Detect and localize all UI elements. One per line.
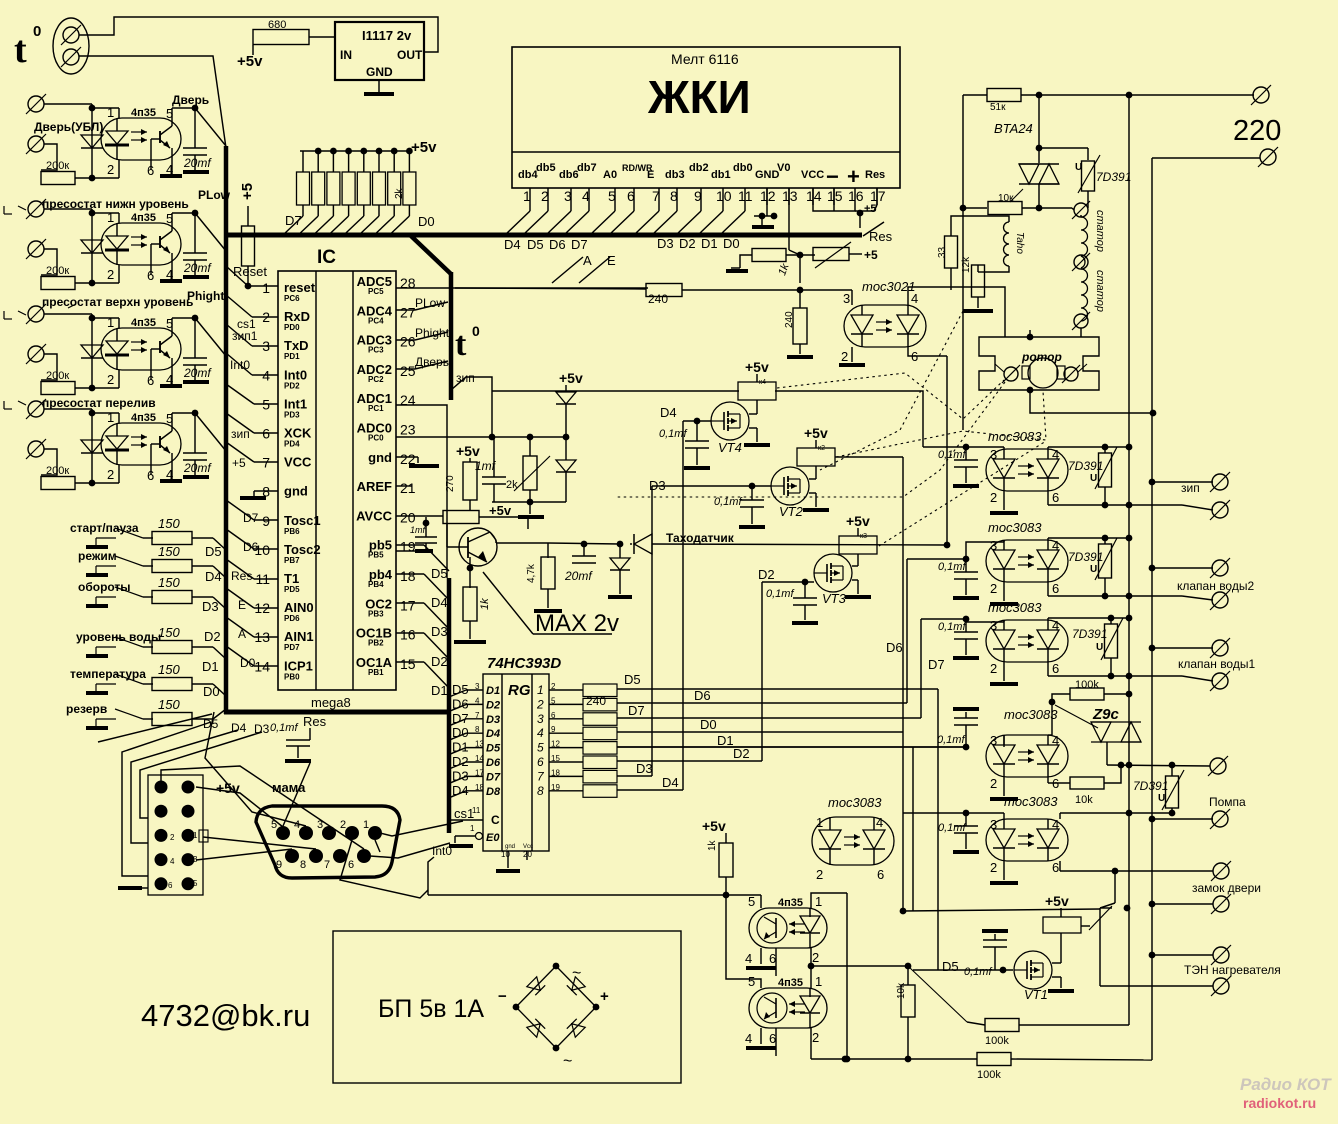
svg-text:0: 0 — [472, 323, 480, 339]
svg-text:13: 13 — [782, 188, 798, 204]
svg-text:2: 2 — [990, 860, 997, 875]
svg-text:200к: 200к — [46, 265, 69, 277]
svg-text:gnd: gnd — [284, 484, 308, 499]
svg-text:6: 6 — [1052, 661, 1059, 676]
svg-text:100k: 100k — [985, 1035, 1009, 1047]
svg-text:статор: статор — [1094, 270, 1106, 312]
svg-text:7D391: 7D391 — [1133, 779, 1168, 793]
svg-text:Радио КОТ: Радио КОТ — [1240, 1075, 1332, 1094]
svg-text:температура: температура — [70, 667, 146, 681]
svg-text:12k: 12k — [961, 256, 972, 273]
svg-text:db1: db1 — [711, 169, 731, 181]
svg-text:5: 5 — [748, 974, 755, 989]
svg-text:VT3: VT3 — [822, 591, 847, 606]
svg-text:2: 2 — [107, 467, 114, 482]
svg-text:E: E — [238, 598, 246, 612]
svg-text:150: 150 — [158, 697, 180, 712]
svg-text:Res: Res — [869, 229, 893, 244]
svg-text:7D391: 7D391 — [1072, 627, 1107, 641]
svg-text:74HC393D: 74HC393D — [487, 655, 561, 672]
svg-text:4: 4 — [745, 951, 752, 966]
svg-text:2: 2 — [536, 697, 544, 711]
svg-text:10k: 10k — [1075, 794, 1093, 806]
svg-text:+5v: +5v — [745, 359, 769, 375]
svg-text:moc3083: moc3083 — [988, 600, 1042, 615]
svg-text:+5v: +5v — [846, 513, 870, 529]
svg-text:1: 1 — [193, 831, 198, 840]
svg-text:220: 220 — [1233, 115, 1281, 147]
svg-text:24: 24 — [400, 392, 416, 408]
svg-text:режим: режим — [78, 549, 117, 563]
svg-text:D7: D7 — [486, 771, 501, 783]
svg-text:200к: 200к — [46, 160, 69, 172]
svg-text:27: 27 — [400, 304, 416, 320]
svg-text:D3: D3 — [636, 761, 653, 776]
svg-text:mega8: mega8 — [311, 695, 351, 710]
svg-text:BTA24: BTA24 — [994, 121, 1033, 136]
svg-text:VT1: VT1 — [1024, 987, 1048, 1002]
svg-text:+5v: +5v — [489, 503, 512, 518]
svg-text:D1: D1 — [202, 659, 219, 674]
svg-text:VT2: VT2 — [779, 504, 804, 519]
svg-text:PD7: PD7 — [284, 643, 300, 652]
svg-text:0: 0 — [33, 23, 41, 40]
svg-text:7D391: 7D391 — [1068, 459, 1103, 473]
svg-text:PC4: PC4 — [368, 316, 384, 325]
svg-text:+5: +5 — [239, 183, 256, 200]
svg-text:+5v: +5v — [411, 139, 437, 156]
svg-text:20mf: 20mf — [183, 261, 212, 275]
svg-text:1k: 1k — [707, 839, 718, 851]
svg-text:D7: D7 — [285, 213, 302, 228]
svg-text:6: 6 — [147, 468, 154, 483]
svg-text:240: 240 — [784, 311, 795, 328]
svg-text:6: 6 — [769, 951, 776, 966]
svg-text:U: U — [1075, 162, 1082, 173]
svg-text:зип: зип — [1181, 481, 1200, 495]
svg-text:PC1: PC1 — [368, 404, 384, 413]
svg-text:18: 18 — [400, 568, 416, 584]
svg-text:D0: D0 — [240, 656, 256, 670]
svg-text:D2: D2 — [204, 629, 221, 644]
svg-text:PC0: PC0 — [368, 434, 384, 443]
svg-text:Res: Res — [303, 714, 327, 729]
svg-text:10: 10 — [501, 850, 510, 859]
svg-text:6: 6 — [769, 1031, 776, 1046]
svg-text:GND: GND — [755, 169, 780, 181]
svg-text:200к: 200к — [46, 370, 69, 382]
svg-text:1: 1 — [107, 210, 114, 225]
svg-text:15: 15 — [400, 656, 416, 672]
svg-text:VCC: VCC — [801, 169, 824, 181]
svg-text:D4: D4 — [431, 595, 448, 610]
svg-text:D2: D2 — [679, 236, 696, 251]
svg-text:2k: 2k — [394, 187, 405, 199]
svg-text:D0: D0 — [700, 717, 717, 732]
svg-text:23: 23 — [400, 422, 416, 438]
svg-text:6: 6 — [1052, 581, 1059, 596]
svg-text:A: A — [238, 627, 246, 641]
svg-text:Res: Res — [231, 569, 252, 583]
svg-text:20mf: 20mf — [183, 156, 212, 170]
svg-text:+5: +5 — [864, 248, 878, 262]
svg-text:RG: RG — [508, 682, 531, 699]
svg-text:PC2: PC2 — [368, 375, 384, 384]
svg-text:PLow: PLow — [198, 188, 231, 202]
svg-text:150: 150 — [158, 516, 180, 531]
svg-text:moc3083: moc3083 — [988, 429, 1042, 444]
svg-text:−: − — [498, 988, 507, 1005]
svg-text:20mf: 20mf — [564, 569, 593, 583]
svg-text:reset: reset — [284, 280, 316, 295]
svg-text:Дверь(УБЛ): Дверь(УБЛ) — [34, 120, 103, 134]
svg-text:D7: D7 — [243, 511, 259, 525]
svg-text:ТЭН нагревателя: ТЭН нагревателя — [1184, 963, 1281, 977]
svg-text:240: 240 — [648, 292, 668, 306]
svg-text:2: 2 — [340, 819, 346, 831]
svg-text:4п35: 4п35 — [131, 107, 156, 119]
svg-text:2: 2 — [841, 349, 848, 364]
svg-text:D5: D5 — [624, 672, 641, 687]
svg-text:D6: D6 — [886, 640, 903, 655]
svg-text:2: 2 — [990, 581, 997, 596]
svg-text:17: 17 — [870, 188, 886, 204]
svg-text:4п35: 4п35 — [131, 212, 156, 224]
svg-text:GND: GND — [366, 65, 393, 79]
svg-text:4п35: 4п35 — [131, 317, 156, 329]
svg-text:0,1mf: 0,1mf — [270, 722, 298, 734]
svg-text:51к: 51к — [990, 102, 1006, 113]
svg-text:t: t — [14, 29, 27, 71]
svg-text:2: 2 — [990, 661, 997, 676]
svg-text:PB0: PB0 — [284, 672, 300, 681]
svg-text:240: 240 — [586, 694, 606, 708]
svg-text:0,1mf: 0,1mf — [964, 966, 992, 978]
svg-text:U: U — [1090, 473, 1097, 484]
svg-text:26: 26 — [400, 334, 416, 350]
svg-text:PC3: PC3 — [368, 346, 384, 355]
svg-text:AIN0: AIN0 — [284, 600, 314, 615]
svg-text:moc3083: moc3083 — [828, 795, 882, 810]
svg-text:Tosc1: Tosc1 — [284, 513, 321, 528]
svg-text:D7: D7 — [571, 237, 588, 252]
svg-text:12: 12 — [760, 188, 776, 204]
svg-text:обороты: обороты — [78, 580, 131, 594]
svg-text:4: 4 — [876, 815, 883, 830]
svg-text:+5: +5 — [864, 203, 877, 215]
svg-text:D0: D0 — [723, 236, 740, 251]
svg-text:150: 150 — [158, 575, 180, 590]
svg-text:1mf: 1mf — [410, 525, 427, 535]
svg-text:U: U — [1158, 793, 1165, 804]
svg-text:резерв: резерв — [66, 702, 107, 716]
svg-text:зип: зип — [456, 371, 475, 385]
svg-text:4: 4 — [745, 1031, 752, 1046]
svg-text:17: 17 — [400, 597, 416, 613]
svg-text:A: A — [583, 253, 592, 268]
svg-text:20mf: 20mf — [183, 461, 212, 475]
svg-text:1: 1 — [363, 819, 369, 831]
svg-text:IN: IN — [340, 48, 352, 62]
svg-text:+5v: +5v — [237, 53, 263, 70]
svg-text:A0: A0 — [603, 169, 617, 181]
svg-text:1: 1 — [107, 315, 114, 330]
svg-text:Res: Res — [865, 169, 885, 181]
svg-text:8: 8 — [300, 859, 306, 871]
svg-text:db2: db2 — [689, 162, 709, 174]
svg-text:PLow: PLow — [415, 296, 445, 310]
svg-text:~: ~ — [563, 1053, 572, 1070]
svg-text:пресостат перелив: пресостат перелив — [42, 396, 156, 410]
svg-text:клапан воды2: клапан воды2 — [1177, 579, 1254, 593]
svg-text:+: + — [600, 988, 609, 1005]
svg-text:PC5: PC5 — [368, 287, 384, 296]
svg-text:PD3: PD3 — [284, 410, 300, 419]
svg-text:200к: 200к — [46, 465, 69, 477]
svg-text:20: 20 — [400, 509, 416, 525]
svg-text:1: 1 — [537, 683, 544, 697]
svg-text:D3: D3 — [657, 236, 674, 251]
svg-text:db7: db7 — [577, 162, 597, 174]
svg-text:14: 14 — [806, 188, 822, 204]
svg-text:D1: D1 — [486, 685, 500, 697]
svg-text:4п35: 4п35 — [778, 897, 803, 909]
svg-text:150: 150 — [158, 662, 180, 677]
svg-text:C: C — [491, 813, 500, 827]
svg-text:1: 1 — [470, 824, 475, 833]
svg-text:16: 16 — [400, 627, 416, 643]
svg-text:пресостат нижн уровень: пресостат нижн уровень — [42, 197, 189, 211]
svg-text:4: 4 — [294, 819, 300, 831]
svg-text:2: 2 — [990, 776, 997, 791]
svg-text:0,1mf: 0,1mf — [766, 588, 794, 600]
svg-text:150: 150 — [158, 625, 180, 640]
svg-text:PB2: PB2 — [368, 639, 384, 648]
svg-text:3: 3 — [537, 712, 544, 726]
svg-text:D4: D4 — [662, 775, 679, 790]
svg-text:2k: 2k — [506, 479, 518, 491]
svg-text:PD5: PD5 — [284, 585, 300, 594]
svg-text:2: 2 — [107, 372, 114, 387]
svg-text:680: 680 — [268, 19, 286, 31]
svg-text:33: 33 — [937, 246, 948, 258]
svg-text:10: 10 — [716, 188, 732, 204]
svg-text:пресостат верхн уровень: пресостат верхн уровень — [42, 295, 193, 309]
svg-text:U: U — [1090, 564, 1097, 575]
svg-text:4п35: 4п35 — [131, 412, 156, 424]
svg-text:11: 11 — [472, 806, 481, 815]
svg-text:16: 16 — [848, 188, 864, 204]
svg-text:+5v: +5v — [1045, 893, 1069, 909]
svg-text:клапан воды1: клапан воды1 — [1178, 657, 1255, 671]
svg-text:D4: D4 — [504, 237, 521, 252]
svg-text:V0: V0 — [777, 162, 790, 174]
svg-text:ICP1: ICP1 — [284, 658, 313, 673]
svg-text:db3: db3 — [665, 169, 685, 181]
svg-text:19: 19 — [400, 539, 416, 555]
svg-text:PB4: PB4 — [368, 580, 384, 589]
svg-text:7: 7 — [324, 859, 330, 871]
svg-text:0,1mf: 0,1mf — [714, 496, 742, 508]
svg-text:D3: D3 — [431, 624, 448, 639]
svg-text:radiokot.ru: radiokot.ru — [1243, 1095, 1316, 1111]
svg-text:2: 2 — [812, 1030, 819, 1045]
svg-text:D4: D4 — [231, 721, 247, 735]
svg-text:4п35: 4п35 — [778, 977, 803, 989]
svg-text:D2: D2 — [733, 746, 750, 761]
svg-text:Taho: Taho — [1014, 232, 1025, 254]
svg-text:7D391: 7D391 — [1068, 550, 1103, 564]
svg-text:PD0: PD0 — [284, 323, 300, 332]
svg-text:moc3083: moc3083 — [988, 520, 1042, 535]
svg-text:Phight: Phight — [415, 326, 450, 340]
svg-text:+5v: +5v — [702, 818, 726, 834]
svg-text:9: 9 — [262, 513, 270, 529]
svg-text:OUT: OUT — [397, 48, 423, 62]
svg-text:Z9c: Z9c — [1092, 706, 1120, 723]
svg-text:10k: 10k — [896, 982, 907, 999]
svg-text:2: 2 — [170, 833, 175, 842]
svg-text:D1: D1 — [701, 236, 718, 251]
svg-text:t: t — [455, 326, 467, 363]
svg-text:gnd: gnd — [368, 450, 392, 465]
svg-text:D1: D1 — [717, 733, 734, 748]
svg-text:4: 4 — [911, 291, 918, 306]
svg-text:Мелт 6116: Мелт 6116 — [671, 51, 739, 67]
svg-text:+5v: +5v — [456, 443, 480, 459]
svg-text:7D391: 7D391 — [1096, 170, 1131, 184]
svg-text:1: 1 — [107, 105, 114, 120]
svg-text:~: ~ — [572, 965, 581, 982]
svg-text:270: 270 — [445, 475, 456, 492]
svg-text:I1117 2v: I1117 2v — [362, 28, 412, 43]
svg-text:1: 1 — [107, 410, 114, 425]
svg-text:5: 5 — [748, 894, 755, 909]
svg-text:D2: D2 — [758, 567, 775, 582]
svg-text:D6: D6 — [243, 540, 259, 554]
svg-text:Int1: Int1 — [284, 396, 307, 411]
svg-text:PB7: PB7 — [284, 556, 300, 565]
svg-text:moc3083: moc3083 — [1004, 707, 1058, 722]
svg-text:6: 6 — [147, 373, 154, 388]
svg-text:Int0: Int0 — [284, 367, 307, 382]
svg-text:db5: db5 — [536, 162, 556, 174]
svg-text:6: 6 — [147, 163, 154, 178]
svg-text:4732@bk.ru: 4732@bk.ru — [141, 998, 310, 1033]
svg-text:5: 5 — [193, 879, 198, 888]
svg-text:Int0: Int0 — [230, 358, 250, 372]
svg-text:3: 3 — [843, 291, 850, 306]
svg-text:D5: D5 — [486, 743, 501, 755]
svg-text:−: − — [826, 164, 839, 189]
svg-text:RxD: RxD — [284, 309, 310, 324]
svg-text:2: 2 — [812, 950, 819, 965]
svg-text:db6: db6 — [559, 169, 579, 181]
svg-text:VT4: VT4 — [718, 440, 742, 455]
svg-text:6: 6 — [168, 881, 173, 890]
svg-text:D4: D4 — [205, 569, 222, 584]
svg-text:E: E — [647, 169, 654, 181]
svg-text:PD4: PD4 — [284, 440, 300, 449]
svg-text:PB3: PB3 — [368, 609, 384, 618]
svg-text:1: 1 — [815, 894, 822, 909]
svg-text:6: 6 — [1052, 490, 1059, 505]
svg-text:E0: E0 — [486, 832, 500, 844]
svg-text:4,7k: 4,7k — [526, 563, 537, 583]
svg-text:10к: 10к — [998, 193, 1014, 204]
svg-text:Int0: Int0 — [432, 844, 452, 858]
svg-text:D6: D6 — [486, 757, 501, 769]
svg-text:6: 6 — [537, 755, 544, 769]
svg-text:PB1: PB1 — [368, 668, 384, 677]
svg-text:БП 5в 1А: БП 5в 1А — [378, 995, 484, 1023]
svg-text:6: 6 — [877, 867, 884, 882]
svg-text:AVCC: AVCC — [356, 508, 392, 523]
svg-text:20mf: 20mf — [183, 366, 212, 380]
svg-text:1: 1 — [816, 815, 823, 830]
svg-text:PB6: PB6 — [284, 527, 300, 536]
svg-text:VCC: VCC — [284, 455, 312, 470]
svg-text:AIN1: AIN1 — [284, 629, 314, 644]
svg-text:Помпа: Помпа — [1209, 795, 1246, 809]
svg-text:4: 4 — [170, 857, 175, 866]
svg-text:PD1: PD1 — [284, 352, 300, 361]
svg-text:замок двери: замок двери — [1192, 881, 1261, 895]
svg-text:6: 6 — [1052, 860, 1059, 875]
svg-text:D3: D3 — [202, 599, 219, 614]
svg-text:D5: D5 — [527, 237, 544, 252]
svg-text:2: 2 — [107, 162, 114, 177]
svg-text:100k: 100k — [1075, 679, 1099, 691]
svg-text:статор: статор — [1094, 210, 1106, 252]
svg-text:Дверь: Дверь — [415, 355, 449, 369]
svg-text:+: + — [847, 164, 860, 189]
svg-text:4: 4 — [537, 726, 544, 740]
svg-text:moc3083: moc3083 — [1004, 794, 1058, 809]
svg-text:D8: D8 — [486, 786, 501, 798]
svg-text:150: 150 — [158, 544, 180, 559]
svg-text:21: 21 — [400, 480, 416, 496]
svg-text:1: 1 — [262, 280, 270, 296]
svg-text:Tosc2: Tosc2 — [284, 542, 321, 557]
svg-text:D1: D1 — [431, 683, 448, 698]
svg-text:1k: 1k — [479, 598, 491, 610]
svg-text:15: 15 — [827, 188, 843, 204]
svg-text:PD6: PD6 — [284, 614, 300, 623]
svg-text:U: U — [1096, 642, 1103, 653]
svg-text:8: 8 — [537, 784, 544, 798]
svg-text:XCK: XCK — [284, 426, 312, 441]
svg-text:AREF: AREF — [357, 479, 392, 494]
svg-text:D2: D2 — [431, 654, 448, 669]
svg-text:6: 6 — [147, 268, 154, 283]
svg-text:100k: 100k — [977, 1069, 1001, 1081]
svg-text:D4: D4 — [486, 728, 500, 740]
svg-text:+5v: +5v — [559, 370, 583, 386]
svg-text:D0: D0 — [418, 214, 435, 229]
svg-text:TxD: TxD — [284, 338, 309, 353]
svg-text:D2: D2 — [486, 699, 500, 711]
svg-text:D4: D4 — [660, 405, 677, 420]
svg-text:D6: D6 — [549, 237, 566, 252]
svg-text:2: 2 — [990, 490, 997, 505]
svg-text:ЖКИ: ЖКИ — [647, 71, 751, 123]
svg-text:MAX 2v: MAX 2v — [535, 610, 619, 637]
svg-text:D3: D3 — [486, 714, 500, 726]
svg-text:Таходатчик: Таходатчик — [666, 531, 735, 545]
svg-text:9: 9 — [276, 859, 282, 871]
svg-text:db0: db0 — [733, 162, 753, 174]
